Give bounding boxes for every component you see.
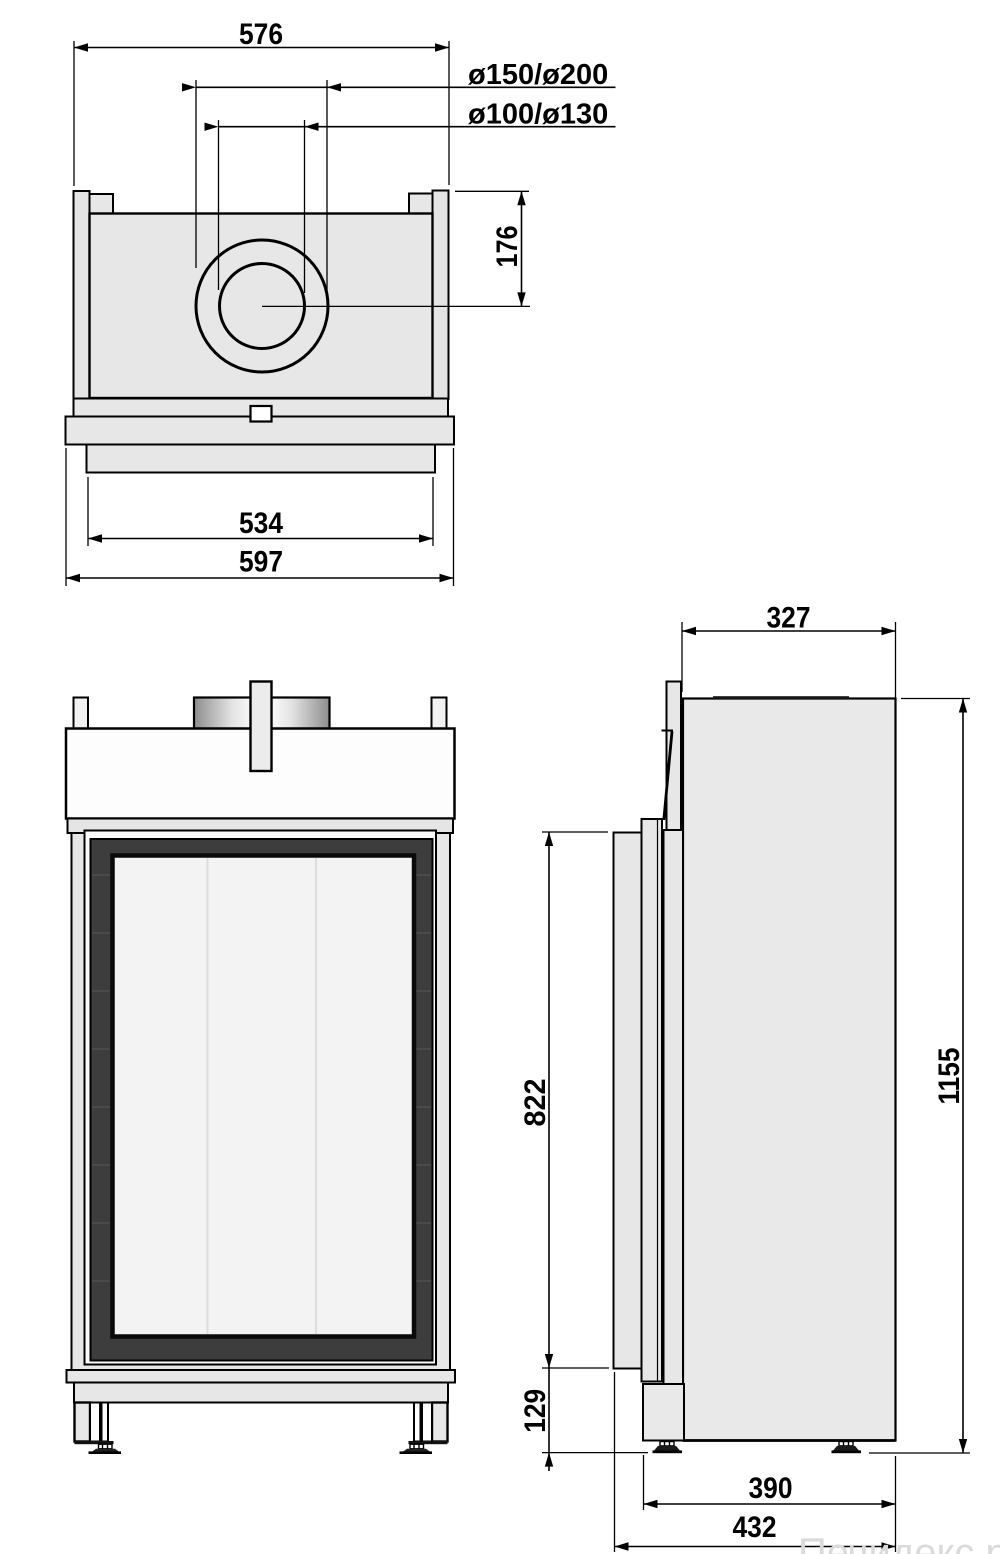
- svg-text:576: 576: [239, 18, 283, 51]
- svg-text:ø100/ø130: ø100/ø130: [468, 99, 608, 131]
- svg-text:597: 597: [239, 546, 283, 579]
- svg-text:176: 176: [491, 226, 524, 268]
- svg-text:390: 390: [749, 1472, 793, 1505]
- svg-text:Печидекс.ру: Печидекс.ру: [798, 1531, 1000, 1554]
- svg-text:327: 327: [767, 602, 811, 635]
- svg-text:ø150/ø200: ø150/ø200: [468, 59, 608, 91]
- svg-text:822: 822: [519, 1079, 552, 1127]
- svg-text:432: 432: [733, 1511, 777, 1544]
- svg-text:129: 129: [519, 1389, 552, 1433]
- svg-text:534: 534: [239, 507, 283, 540]
- svg-text:1155: 1155: [933, 1048, 966, 1105]
